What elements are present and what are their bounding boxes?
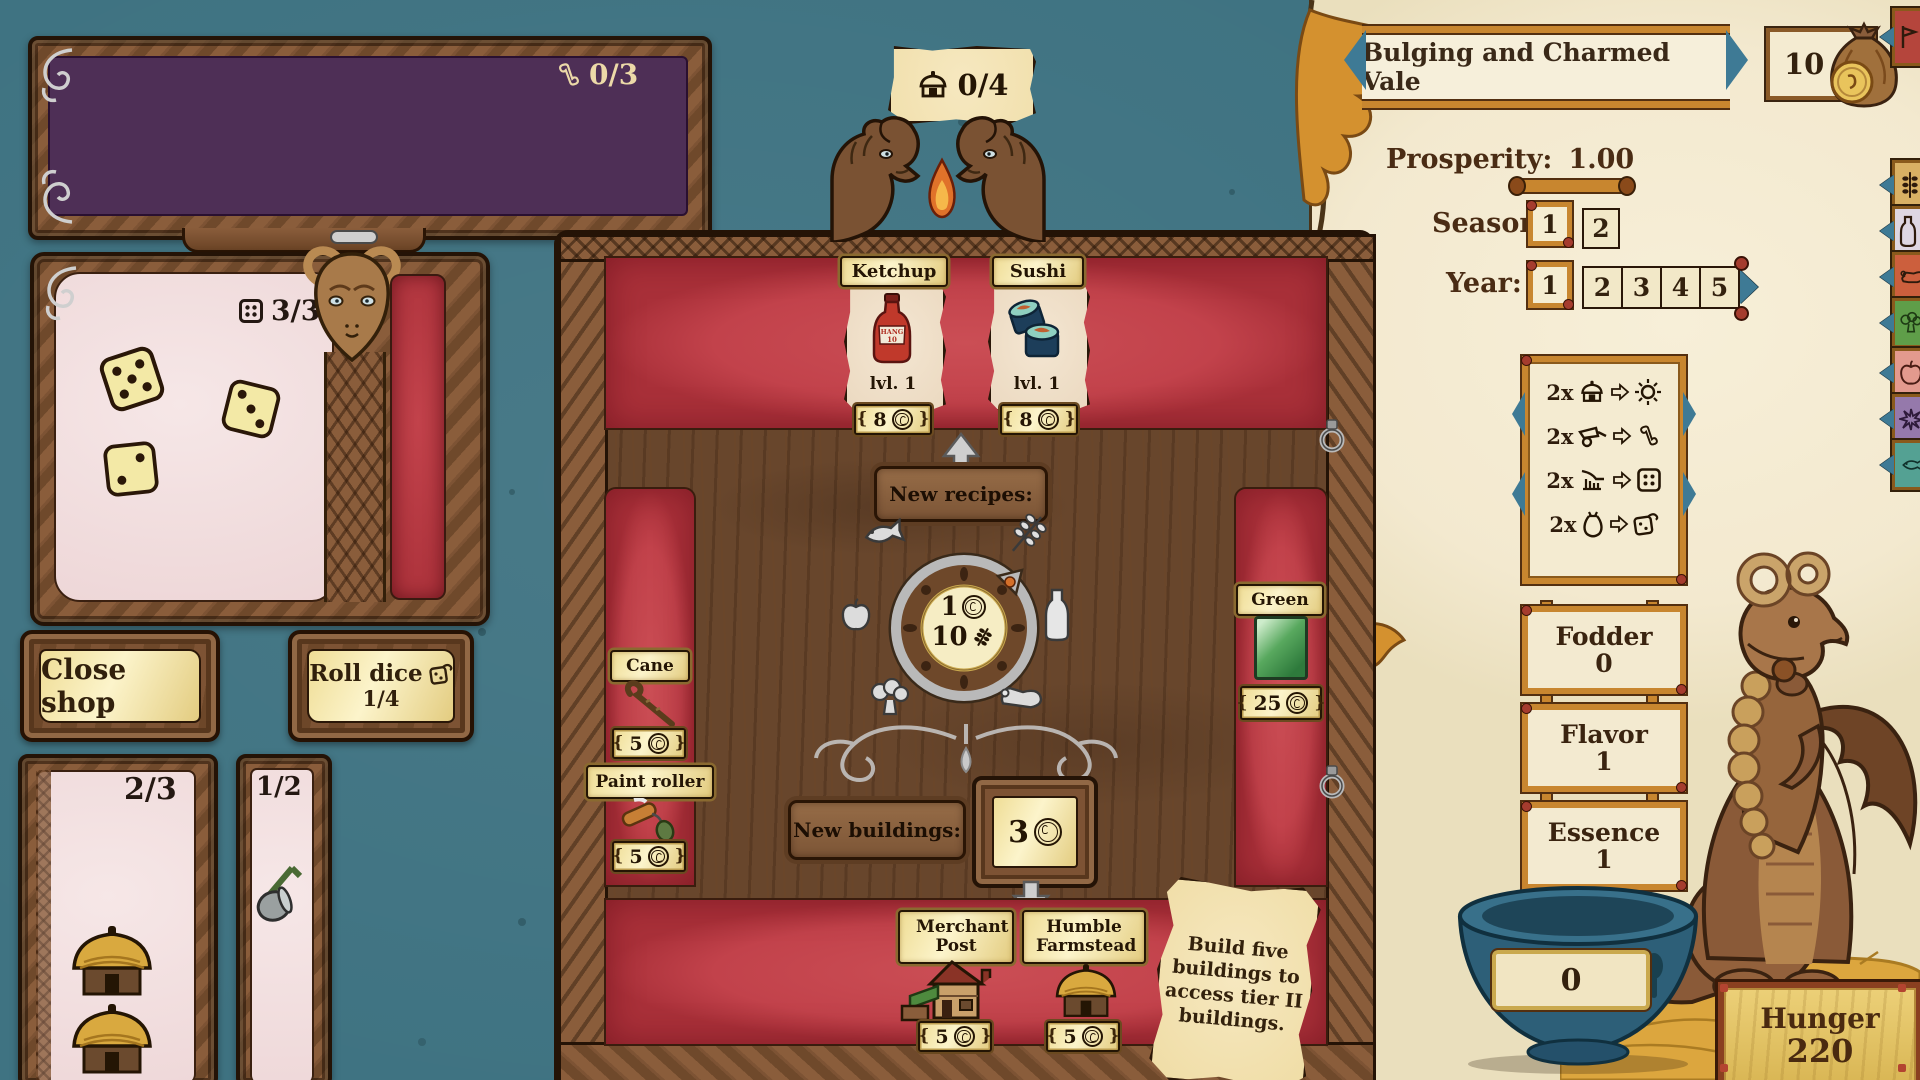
conversion-row: 2x: [1530, 370, 1678, 414]
shelf-handle: [330, 230, 378, 244]
roll-dice-count: 1/4: [363, 687, 400, 711]
drumstick-icon: [1899, 266, 1920, 288]
buildings-card-lattice: [36, 770, 51, 1080]
conversion-row: 2x: [1530, 414, 1678, 458]
humble-farmstead-icon[interactable]: [1048, 958, 1124, 1022]
hunger-value: 220: [1787, 1034, 1854, 1069]
new-buildings-label: New buildings:: [793, 818, 961, 842]
year-cell-current: 1: [1528, 262, 1572, 308]
milk-bottle-icon: [1899, 215, 1917, 247]
coin-icon: [962, 595, 986, 619]
wheat-icon: [971, 626, 995, 648]
new-buildings-plaque: New buildings:: [788, 800, 966, 860]
price-value: 5: [629, 733, 642, 755]
tab-milk[interactable]: [1892, 206, 1920, 256]
year-cell: 5: [1701, 266, 1740, 309]
roll-dice-button[interactable]: Roll dice 1/4: [288, 630, 474, 742]
tab-alert[interactable]: [1892, 8, 1920, 66]
recipe-name-sushi: Sushi: [992, 256, 1084, 287]
recipe-shelf: [604, 256, 1328, 430]
filigree-curl: [34, 44, 78, 104]
apple-icon: [1899, 360, 1920, 386]
year-cell: 3: [1623, 266, 1662, 309]
price-value: 8: [1019, 409, 1032, 431]
broccoli-icon: [1899, 311, 1920, 335]
price-value: 25: [1254, 691, 1282, 715]
tab-anise[interactable]: [1892, 394, 1920, 444]
scroll-icon: [556, 60, 582, 90]
year-value: 3: [1633, 273, 1650, 302]
money-value: 10: [1784, 47, 1824, 81]
building-name-text: Merchant Post: [916, 918, 996, 955]
star-anise-icon: [1899, 407, 1920, 431]
buildings-card-count: 2/3: [124, 772, 177, 807]
year-cell: 2: [1582, 266, 1623, 309]
merchant-post-icon[interactable]: [886, 956, 1016, 1026]
conversion-qty: 2x: [1546, 424, 1573, 449]
close-shop-label: Close shop: [41, 653, 199, 719]
sun-icon: [1634, 378, 1662, 406]
metal-ring: [1318, 418, 1346, 456]
year-value: 1: [1541, 271, 1558, 300]
dice-panel-red-slot: [390, 274, 446, 600]
recipe-name-text: Ketchup: [852, 261, 937, 282]
prosperity-value: 1.00: [1568, 144, 1634, 175]
board-dragon-head-left: [812, 116, 928, 242]
dice-panel-dragon-head: [300, 246, 404, 362]
bowl-counter: 0: [1492, 950, 1650, 1010]
year-arrow: [1740, 270, 1758, 304]
board-dragon-head-right: [948, 116, 1064, 242]
new-recipes-label: New recipes:: [889, 482, 1033, 506]
cart-icon: [1578, 424, 1608, 448]
blue-drape-left: [1512, 392, 1525, 436]
blue-drape-left2: [1512, 472, 1525, 516]
tab-wheat[interactable]: [1892, 160, 1920, 210]
banner-end-left: [1344, 30, 1366, 90]
season-cell: 2: [1582, 208, 1620, 249]
coin-icon: [648, 846, 669, 867]
die-two[interactable]: [101, 439, 160, 498]
year-rail-knob-top: [1734, 256, 1749, 271]
buildings-banner-count: 0/4: [958, 68, 1009, 102]
wheel-wheat-cost: 10: [931, 622, 967, 652]
green-paint-swatch[interactable]: [1254, 616, 1308, 680]
green-paint-price: 25: [1240, 686, 1322, 720]
arrow-right-icon: [1609, 515, 1629, 533]
price-value: 5: [1063, 1026, 1076, 1048]
recipe-level: lvl. 1: [858, 374, 928, 394]
paint-roller-price: 5: [612, 841, 686, 872]
year-strip: 2 3 4 5: [1582, 266, 1740, 309]
filigree-curl: [34, 168, 78, 228]
coin-icon: [892, 409, 913, 430]
wheel-coin-cost: 1: [940, 592, 958, 622]
conversion-qty: 2x: [1549, 512, 1576, 537]
recipe-price-ketchup: 8: [854, 404, 932, 435]
conversion-qty: 2x: [1546, 380, 1573, 405]
die-face-icon: [238, 298, 264, 324]
buildings-banner: 0/4: [888, 46, 1036, 124]
conversion-qty: 2x: [1546, 468, 1573, 493]
filigree-curl: [38, 262, 82, 322]
building-name-text: Humble Farmstead: [1036, 918, 1132, 955]
board-frame-right: [1326, 234, 1376, 1080]
coin-icon: [648, 733, 669, 754]
die-face-icon: [1636, 467, 1662, 493]
prosperity-label: Prosperity:: [1386, 144, 1552, 175]
prosperity-bar-cap-right: [1618, 176, 1636, 196]
season-value: 1: [1541, 210, 1558, 239]
recipes-counter-value: 0/3: [589, 58, 638, 91]
tab-apple[interactable]: [1892, 348, 1920, 398]
item-name-text: Green: [1251, 590, 1308, 610]
coin-icon: [1034, 818, 1062, 846]
paint-roller-icon[interactable]: [618, 798, 676, 842]
coin-icon: [1038, 409, 1059, 430]
tab-meat[interactable]: [1892, 252, 1920, 302]
svg-text:10: 10: [887, 335, 897, 344]
paint-roller-nameplate: Paint roller: [586, 765, 714, 799]
humble-farmstead-price: 5: [1046, 1021, 1120, 1052]
recipe-name-text: Sushi: [1010, 261, 1066, 282]
coin-icon: [954, 1026, 975, 1047]
tab-broccoli[interactable]: [1892, 298, 1920, 348]
wheat-icon: [1899, 170, 1920, 200]
blue-drape-right2: [1683, 472, 1696, 516]
sushi-icon: [1006, 296, 1068, 362]
broccoli-icon: [868, 678, 912, 718]
prosperity-bar-cap-left: [1508, 176, 1526, 196]
arrow-right-icon: [1610, 383, 1630, 401]
price-value: 5: [629, 846, 642, 868]
metal-ring: [1318, 764, 1346, 802]
arrow-right-icon: [1612, 471, 1632, 489]
price-value: 8: [873, 409, 886, 431]
hunger-corner: [1720, 984, 1728, 992]
tier-note-scroll: Build five buildings to access tier II b…: [1147, 876, 1322, 1080]
building-slot[interactable]: 3: [972, 776, 1098, 888]
coin-icon: [1286, 692, 1308, 714]
apple-icon: [840, 598, 872, 632]
fish-icon: [858, 518, 906, 550]
hut-icon: [62, 1000, 162, 1076]
cane-icon[interactable]: [616, 680, 680, 730]
tab-fish[interactable]: [1892, 440, 1920, 490]
banner-end-right: [1726, 30, 1748, 90]
close-shop-button[interactable]: Close shop: [20, 630, 220, 742]
scroll-icon: [1636, 423, 1662, 449]
drumstick-icon: [998, 680, 1046, 714]
cane-nameplate: Cane: [610, 650, 690, 682]
item-name-text: Paint roller: [596, 772, 705, 792]
year-value: 2: [1594, 273, 1611, 302]
hunger-label: Hunger: [1760, 1004, 1879, 1034]
wheel-cost: 1 10: [924, 592, 1002, 652]
roll-die-icon: [429, 662, 453, 686]
plow-icon: [1578, 467, 1608, 493]
bowl-value: 0: [1561, 963, 1582, 998]
season-cell-current: 1: [1528, 202, 1572, 246]
prosperity-row: Prosperity: 1.00: [1386, 144, 1634, 175]
wheat-icon: [1004, 510, 1050, 558]
board-frame-left: [558, 234, 608, 1080]
hut-icon: [62, 922, 162, 998]
hunger-plaque: Hunger 220: [1718, 982, 1920, 1080]
building-slot-price: 3: [1008, 815, 1029, 850]
blue-drape-right: [1683, 392, 1696, 436]
recipe-level: lvl. 1: [1002, 374, 1072, 394]
tools-card-count: 1/2: [256, 772, 302, 802]
price-value: 5: [935, 1026, 948, 1048]
vale-title: Bulging and Charmed Vale: [1362, 38, 1730, 96]
recipes-counter: 0/3: [556, 58, 638, 91]
season-value: 2: [1592, 214, 1609, 243]
conversion-row: 2x: [1530, 458, 1678, 502]
recipe-price-sushi: 8: [1000, 404, 1078, 435]
flag-icon: [1899, 24, 1919, 50]
ketchup-bottle-icon: HANG 10: [868, 292, 916, 364]
dragon-neck-column: [324, 352, 386, 602]
year-value: 4: [1672, 273, 1689, 302]
hut-icon: [1578, 380, 1606, 404]
merchant-post-price: 5: [918, 1021, 992, 1052]
roll-dice-label: Roll dice: [309, 661, 422, 687]
cane-price: 5: [612, 728, 686, 759]
year-value: 5: [1711, 273, 1728, 302]
flame-icon: [925, 156, 959, 220]
house-icon: [916, 70, 950, 100]
game-screen: 0/3 3/3 Close shop: [0, 0, 1920, 1080]
prosperity-bar: [1516, 178, 1630, 194]
coin-icon: [1082, 1026, 1103, 1047]
year-cell: 4: [1662, 266, 1701, 309]
lawn-roller-icon: [252, 860, 310, 926]
green-paint-nameplate: Green: [1236, 584, 1324, 616]
milk-bottle-icon: [1044, 588, 1070, 642]
recipe-name-ketchup: Ketchup: [840, 256, 948, 287]
vale-title-banner: Bulging and Charmed Vale: [1362, 26, 1730, 108]
humble-farmstead-nameplate: Humble Farmstead: [1022, 910, 1146, 964]
arrow-right-icon: [1612, 427, 1632, 445]
year-label: Year:: [1446, 268, 1522, 299]
item-name-text: Cane: [626, 656, 674, 676]
fish-icon: [1899, 456, 1920, 474]
year-rail-knob-bottom: [1734, 306, 1749, 321]
